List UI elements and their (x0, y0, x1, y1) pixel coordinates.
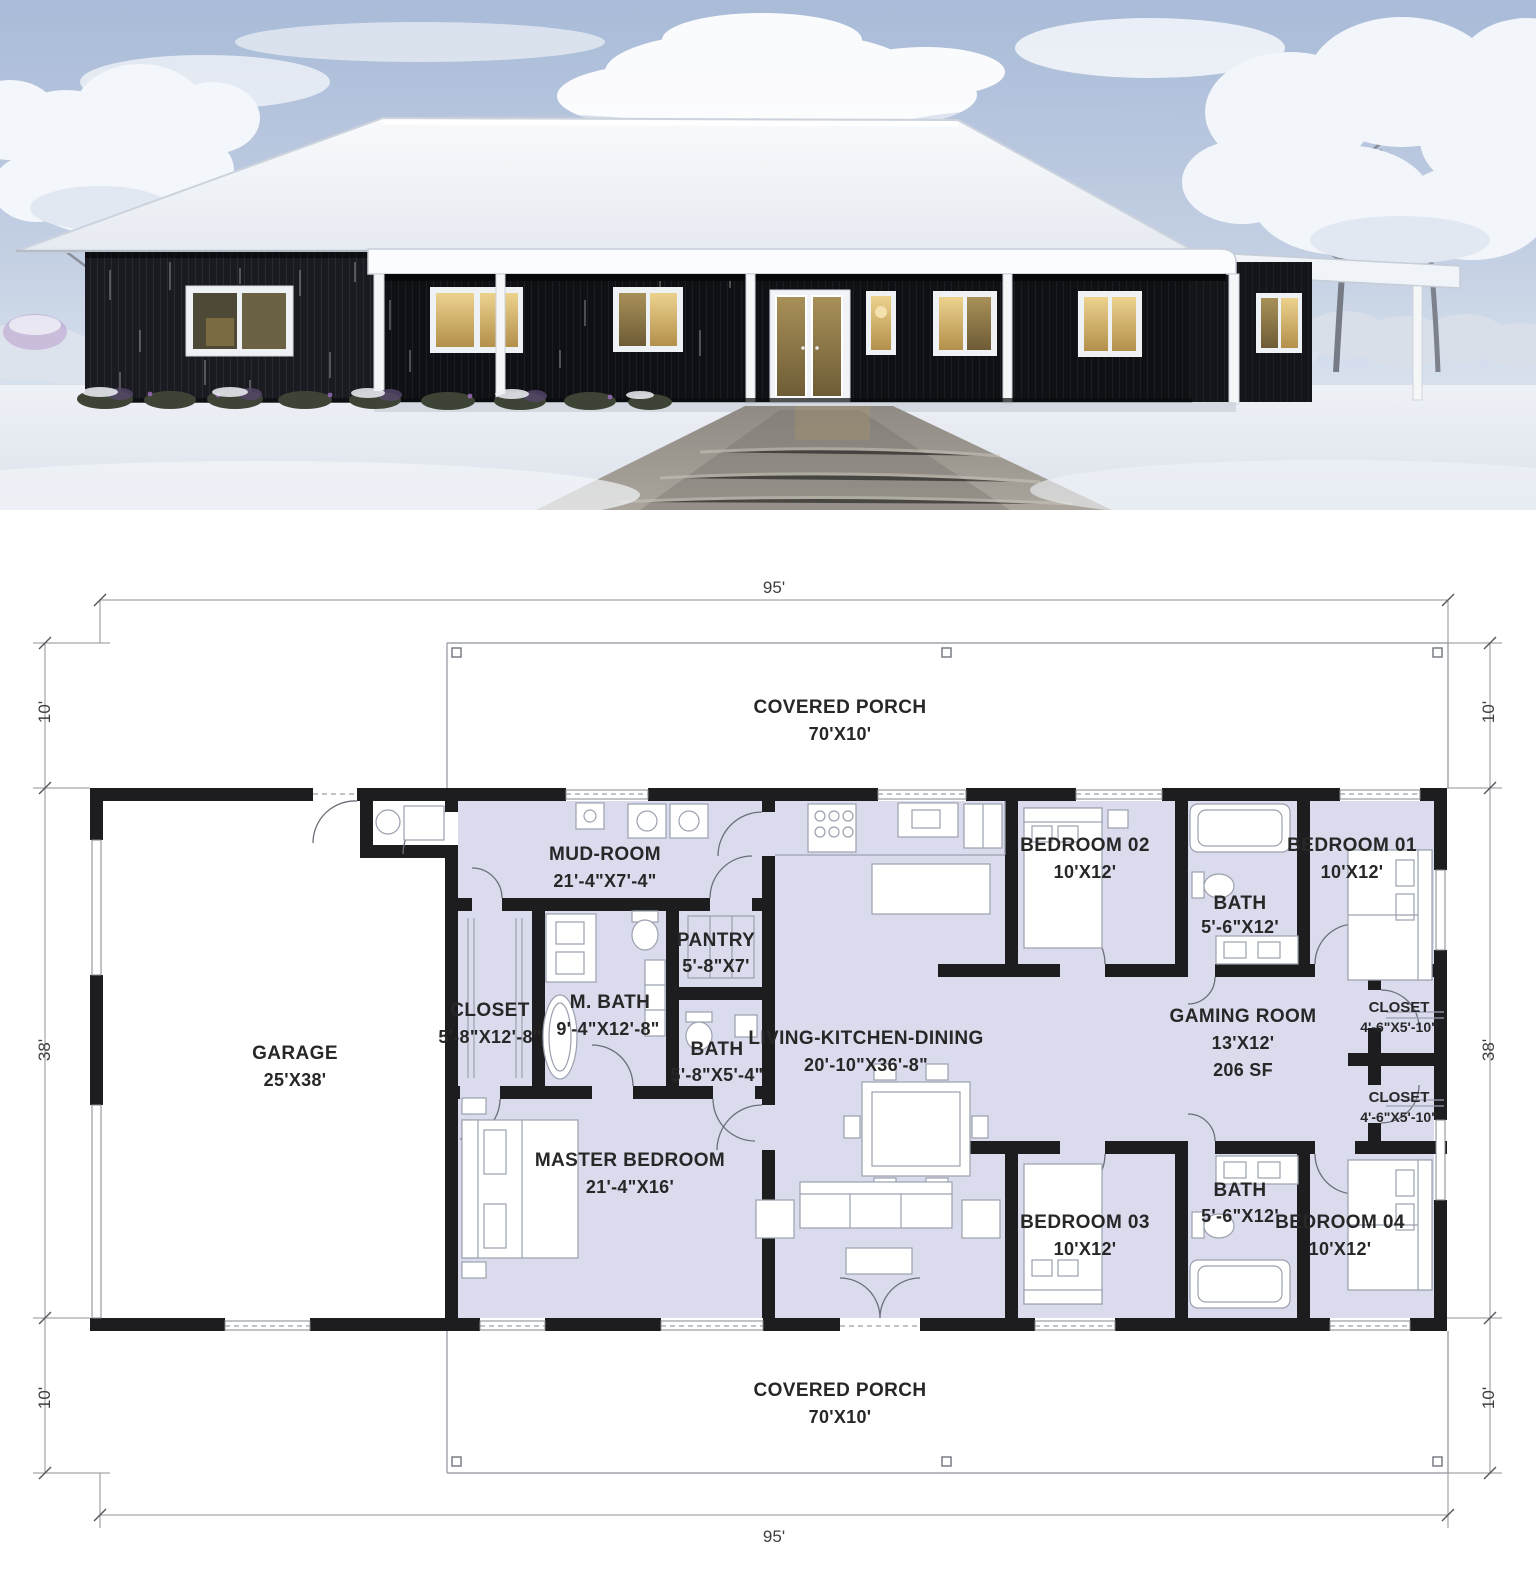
label-bedroom02-size: 10'X12' (1054, 862, 1117, 882)
porch-window-3 (933, 291, 997, 356)
house-photo (0, 0, 1536, 510)
label-master-bath-size: 9'-4"X12'-8" (556, 1019, 659, 1039)
label-bath-bottom-size: 5'-6"X12' (1201, 1206, 1279, 1226)
label-master-bath-name: M. BATH (570, 992, 651, 1013)
porch-window-2 (613, 287, 683, 352)
dim-left-depth: 38' (35, 1039, 54, 1061)
dim-left-porch-top: 10' (35, 701, 54, 723)
door-sidelight (866, 291, 896, 355)
label-closet-lower-name: CLOSET (1369, 1089, 1430, 1106)
label-gaming-name: GAMING ROOM (1170, 1006, 1317, 1027)
label-gaming-area: 206 SF (1213, 1060, 1273, 1080)
label-pantry-size: 5'-8"X7' (682, 956, 750, 976)
label-bedroom01-name: BEDROOM 01 (1287, 835, 1417, 856)
label-closet-name: CLOSET (450, 1000, 529, 1021)
label-master-bedroom-size: 21'-4"X16' (586, 1177, 674, 1197)
porch-roof (368, 249, 1236, 274)
garage-window (186, 286, 293, 356)
label-mudroom-name: MUD-ROOM (549, 844, 661, 865)
roof-ridge-snow (383, 122, 958, 124)
dim-left-porch-bottom: 10' (35, 1387, 54, 1409)
dim-width-top: 95' (763, 578, 785, 597)
house-photo-svg (0, 0, 1536, 510)
dim-right-porch-top: 10' (1479, 701, 1498, 723)
label-bedroom03-size: 10'X12' (1054, 1239, 1117, 1259)
label-porch-top-name: COVERED PORCH (753, 697, 926, 718)
floor-plan: 95' 95' 10' 38' 10' 10' 38' 10' (0, 560, 1536, 1593)
listing-image: 95' 95' 10' 38' 10' 10' 38' 10' (0, 0, 1536, 1593)
label-closet-lower-size: 4'-6"X5'-10" (1360, 1109, 1438, 1125)
label-master-bedroom-name: MASTER BEDROOM (535, 1150, 725, 1171)
label-porch-bottom-size: 70'X10' (809, 1407, 872, 1427)
dim-right-porch-bottom: 10' (1479, 1387, 1498, 1409)
label-bedroom04-size: 10'X12' (1309, 1239, 1372, 1259)
porch-window-4 (1078, 291, 1142, 357)
label-mudroom-size: 21'-4"X7'-4" (553, 871, 656, 891)
label-bath-small-name: BATH (691, 1039, 744, 1060)
label-porch-bottom-name: COVERED PORCH (753, 1380, 926, 1401)
label-pantry-name: PANTRY (677, 930, 755, 951)
entry-double-door (770, 290, 850, 403)
label-garage-size: 25'X38' (264, 1070, 327, 1090)
label-bath-small-size: 5'-8"X5'-4" (671, 1065, 764, 1085)
label-porch-top-size: 70'X10' (809, 724, 872, 744)
dim-width-bottom: 95' (763, 1527, 785, 1546)
carport-post (1413, 286, 1422, 400)
label-bedroom03-name: BEDROOM 03 (1020, 1212, 1150, 1233)
label-closet-upper-size: 4'-6"X5'-10" (1360, 1019, 1438, 1035)
label-bath-bottom-name: BATH (1214, 1180, 1267, 1201)
label-living-name: LIVING-KITCHEN-DINING (748, 1028, 983, 1049)
label-garage-name: GARAGE (252, 1043, 338, 1064)
porch-window-1 (430, 287, 523, 353)
label-living-size: 20'-10"X36'-8" (804, 1055, 928, 1075)
label-bedroom01-size: 10'X12' (1321, 862, 1384, 882)
dim-right-depth: 38' (1479, 1039, 1498, 1061)
label-bath-top-name: BATH (1214, 893, 1267, 914)
label-bath-top-size: 5'-6"X12' (1201, 917, 1279, 937)
floor-plan-svg: 95' 95' 10' 38' 10' 10' 38' 10' (0, 560, 1536, 1593)
label-closet-size: 5'-8"X12'-8" (438, 1027, 541, 1047)
label-bedroom04-name: BEDROOM 04 (1275, 1212, 1405, 1233)
label-bedroom02-name: BEDROOM 02 (1020, 835, 1150, 856)
label-gaming-size: 13'X12' (1212, 1033, 1275, 1053)
right-window (1256, 293, 1302, 353)
label-closet-upper-name: CLOSET (1369, 999, 1430, 1016)
